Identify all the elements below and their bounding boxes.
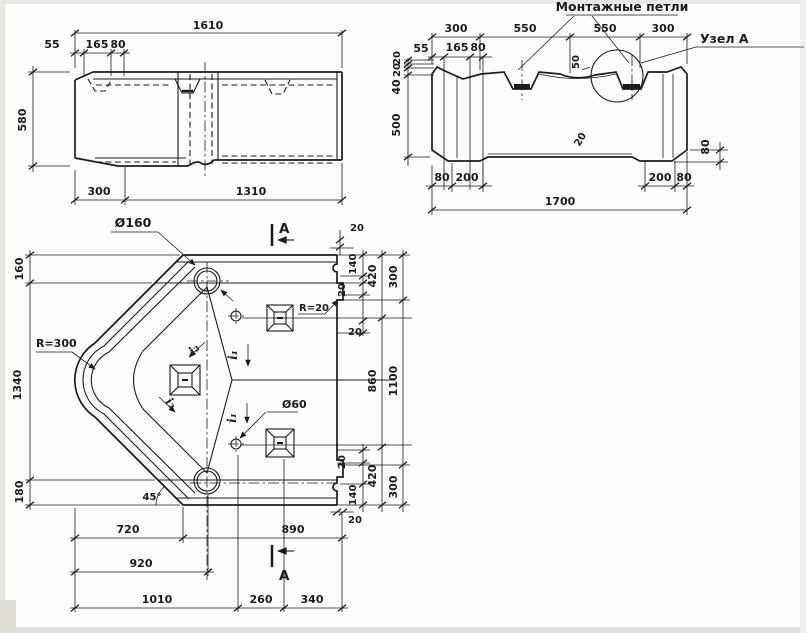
dim-55: 55 [413,42,428,55]
dim-260: 260 [250,593,273,606]
dim-165: 165 [446,41,469,54]
dim-300: 300 [88,185,111,198]
slope-i1-bottom: i₁ [225,413,239,423]
dim-20-r2: 20 [348,327,362,338]
dim-80-right: 80 [699,139,712,155]
dim-500: 500 [390,113,403,136]
dim-1010: 1010 [142,593,173,606]
dim-160: 160 [13,257,26,280]
dim-300-l: 300 [445,22,468,35]
dim-580: 580 [16,108,29,131]
mounting-loops-label: Монтажные петли [556,0,689,14]
dim-80-bl: 80 [434,171,450,184]
dim-165: 165 [86,38,109,51]
slope-i1-top: i₁ [226,350,240,360]
dim-20-r1: 20 [337,283,348,297]
dim-300-b: 300 [387,475,400,498]
side-view: 1610 55 165 80 580 300 1310 [16,19,346,205]
slope-i2-bottom: i₂ [162,395,179,412]
dim-340: 340 [301,593,324,606]
r300-label: R=300 [36,337,77,350]
dim-1340: 1340 [11,369,24,400]
section-letter-bottom: A [279,568,290,584]
side-view-inner-lines [93,72,337,166]
dim-200-br: 200 [649,171,672,184]
section-thin-lines [444,56,675,192]
dim-300-t: 300 [387,265,400,288]
angle-45-label: 45° [143,492,162,503]
dim-180: 180 [13,480,26,503]
dim-890: 890 [282,523,305,536]
node-a-label: Узел А [700,31,749,46]
dim-20-b: 20 [392,63,403,77]
plan-ticks [26,237,407,611]
dim-80: 80 [110,38,126,51]
dim-1700: 1700 [545,195,576,208]
r20-label: R=20 [299,303,329,314]
side-view-outline [75,72,342,166]
dim-40: 40 [390,79,403,95]
dim-1310: 1310 [236,185,267,198]
dim-720: 720 [117,523,140,536]
section-dim-lines [404,33,728,215]
dim-920: 920 [130,557,153,570]
section-view: Монтажные петли Узел А 300 550 550 300 5… [390,0,804,215]
side-view-hidden-lines [88,74,335,164]
dim-860: 860 [366,369,379,392]
pyramid-recess-center [170,365,200,395]
slope-i2-top: i₂ [186,341,203,358]
pyramid-recess-bottom [266,429,294,457]
section-letter-top: A [279,221,290,237]
dim-20-br: 20 [348,515,362,526]
side-view-ticks [29,30,346,203]
dim-80-br: 80 [676,171,692,184]
dia-60-label: Ø60 [282,398,307,411]
dim-20-a: 20 [392,51,403,65]
drawing-sheet: 1610 55 165 80 580 300 1310 [0,0,806,633]
dim-200-bl: 200 [456,171,479,184]
dim-140-t: 140 [348,254,359,275]
engineering-drawing: 1610 55 165 80 580 300 1310 [0,0,806,633]
dim-550-r: 550 [594,22,617,35]
dim-20-tr: 20 [350,223,364,234]
dim-20-slope: 20 [573,131,590,149]
section-marker-a-bottom: A [272,545,294,584]
dim-420-t: 420 [366,264,379,287]
dim-420-b: 420 [366,464,379,487]
dim-50: 50 [571,55,582,69]
dim-55: 55 [44,38,59,51]
corner-hole-circles [194,268,241,494]
dim-550-l: 550 [514,22,537,35]
plan-view: A A Ø160 R=300 R=20 Ø60 45° i₁ i₁ i₂ i₂ … [11,215,412,612]
dim-20-r3: 20 [337,455,348,469]
dim-140-b: 140 [348,485,359,506]
dim-300-r: 300 [652,22,675,35]
dim-80-top: 80 [470,41,486,54]
section-marker-a-top: A [272,221,294,246]
dim-1100: 1100 [387,365,400,396]
dia-160-label: Ø160 [115,215,152,230]
dim-1610: 1610 [193,19,224,32]
